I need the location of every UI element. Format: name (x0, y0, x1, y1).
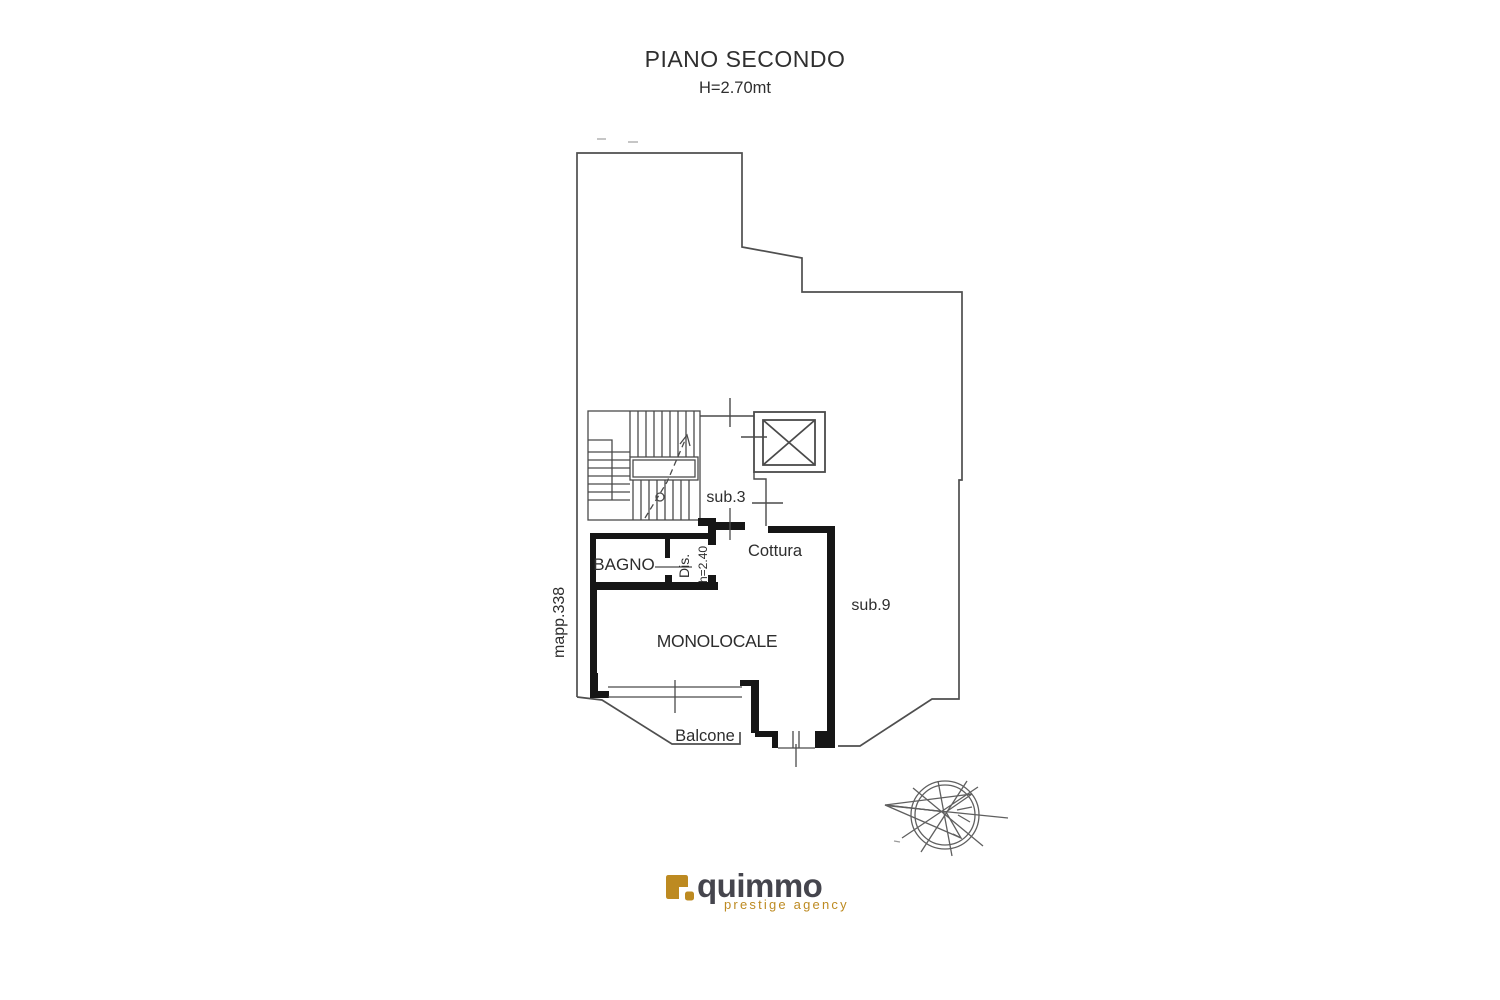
label-cottura: Cottura (748, 542, 803, 560)
label-monolocale: MONOLOCALE (657, 631, 778, 651)
entry-wall-a (698, 518, 714, 526)
bagno-top-wall (590, 533, 716, 539)
stair-inner-wall (588, 440, 612, 500)
bottom-left-wall-v (590, 673, 598, 693)
label-sub3: sub.3 (706, 489, 745, 506)
compass-dash (894, 841, 900, 842)
stair-landing-inner (633, 460, 695, 477)
stair-treads-lower (633, 480, 689, 520)
quimmo-logo-icon (666, 874, 696, 904)
stair-treads-upper (630, 411, 694, 457)
building-outline (577, 153, 962, 746)
floorplan-drawing: sub.3 Cottura BAGNO Dis. h=2.40 MONOLOCA… (0, 0, 1500, 1000)
bottom-left-wall-h (590, 691, 609, 698)
label-bagno: BAGNO (593, 555, 654, 574)
cottura-top-wall (768, 526, 834, 533)
window-right-post-v (751, 683, 759, 733)
logo-dot (685, 892, 694, 901)
elevator-cross (763, 420, 815, 465)
label-dis-height: h=2.40 (696, 546, 710, 583)
label-sub9: sub.9 (851, 597, 890, 614)
monolocale-right-wall (827, 526, 835, 748)
stair-arrow-head (680, 435, 690, 446)
agency-logo: quimmo prestige agency (664, 864, 884, 924)
exit-door-left-post-h (755, 731, 778, 737)
monolocale-left-wall (590, 585, 597, 677)
staircase (588, 411, 700, 520)
bagno-bottom-wall (590, 582, 667, 590)
exit-door-right-post (815, 731, 834, 748)
bagno-bottom-step (665, 575, 672, 590)
entry-wall-b (712, 522, 745, 530)
bagno-dis-stub-wall (665, 539, 670, 558)
compass-rose (885, 781, 1008, 856)
elevator (741, 412, 825, 472)
label-dis: Dis. (676, 554, 692, 578)
brand-tagline: prestige agency (724, 897, 849, 912)
stairwell-box (588, 411, 700, 520)
perimeter-path (577, 153, 962, 746)
logo-house-shape (666, 875, 688, 899)
stair-treads-left (588, 452, 630, 500)
label-balcone: Balcone (675, 727, 735, 745)
label-mapp338: mapp.338 (551, 587, 568, 658)
scan-artifacts (597, 139, 638, 142)
corridor-right-wall (754, 472, 766, 526)
landing-corridor (700, 398, 783, 526)
exit-door-left-post-v (772, 737, 778, 748)
